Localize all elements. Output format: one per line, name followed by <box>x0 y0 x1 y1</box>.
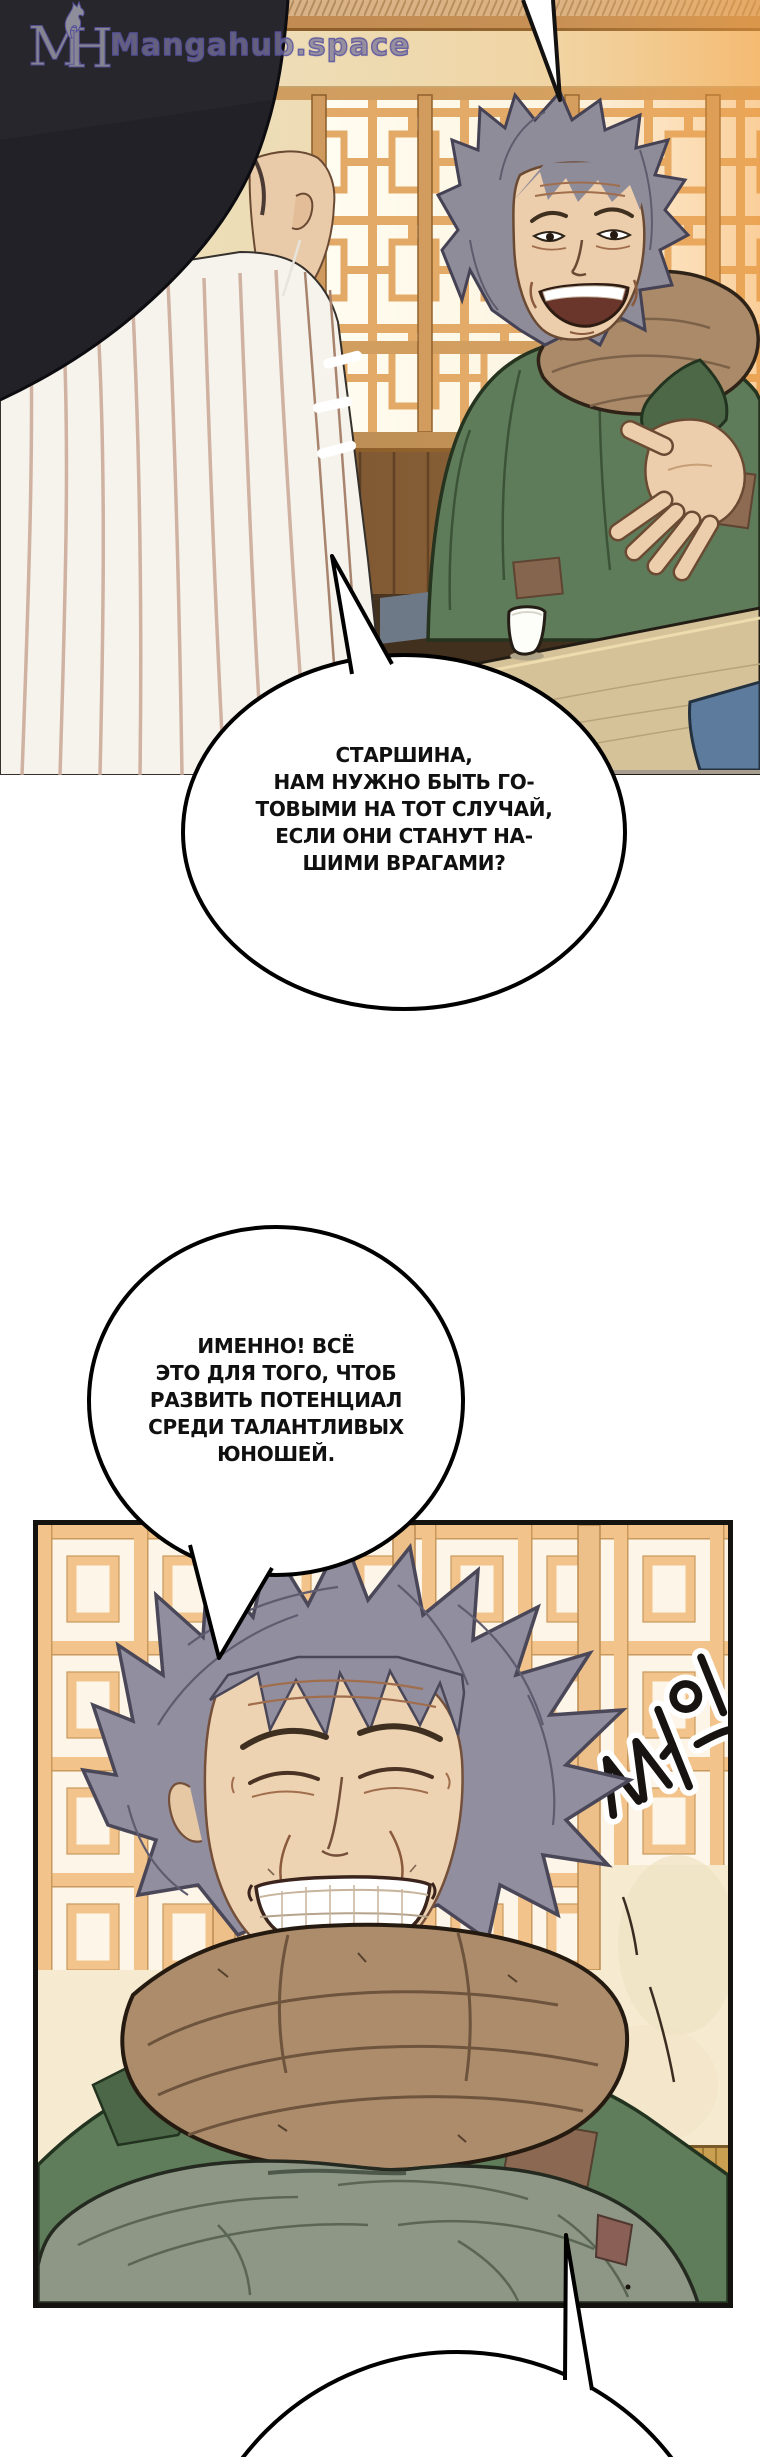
speech-line: СРЕДИ ТАЛАНТЛИВЫХ <box>126 1414 426 1441</box>
sfx-text: 씨익 <box>38 2303 39 2304</box>
speech-line: ШИМИ ВРАГАМИ? <box>234 850 574 877</box>
speech-bubble-3 <box>100 2180 760 2457</box>
speech-bubble-1-text: СТАРШИНА, НАМ НУЖНО БЫТЬ ГО- ТОВЫМИ НА Т… <box>234 742 574 877</box>
speech-line: СТАРШИНА, <box>234 742 574 769</box>
speech-line: ИМЕННО! ВСЁ <box>126 1333 426 1360</box>
site-name: Mangahub.space <box>110 28 410 63</box>
site-watermark: M H Mangahub.space <box>20 2 410 88</box>
speech-line: НАМ НУЖНО БЫТЬ ГО- <box>234 769 574 796</box>
speech-line: ТОВЫМИ НА ТОТ СЛУЧАЙ, <box>234 796 574 823</box>
speech-line: ЕСЛИ ОНИ СТАНУТ НА- <box>234 823 574 850</box>
speech-line: ЭТО ДЛЯ ТОГО, ЧТОБ <box>126 1360 426 1387</box>
speech-bubble-2-text: ИМЕННО! ВСЁ ЭТО ДЛЯ ТОГО, ЧТОБ РАЗВИТЬ П… <box>126 1333 426 1468</box>
manga-page: СТАРШИНА, НАМ НУЖНО БЫТЬ ГО- ТОВЫМИ НА Т… <box>0 0 760 2457</box>
speech-line: ЮНОШЕЙ. <box>126 1441 426 1468</box>
mh-logo: M H <box>20 2 106 88</box>
dragon-icon <box>54 0 88 40</box>
speech-line: РАЗВИТЬ ПОТЕНЦИАЛ <box>126 1387 426 1414</box>
